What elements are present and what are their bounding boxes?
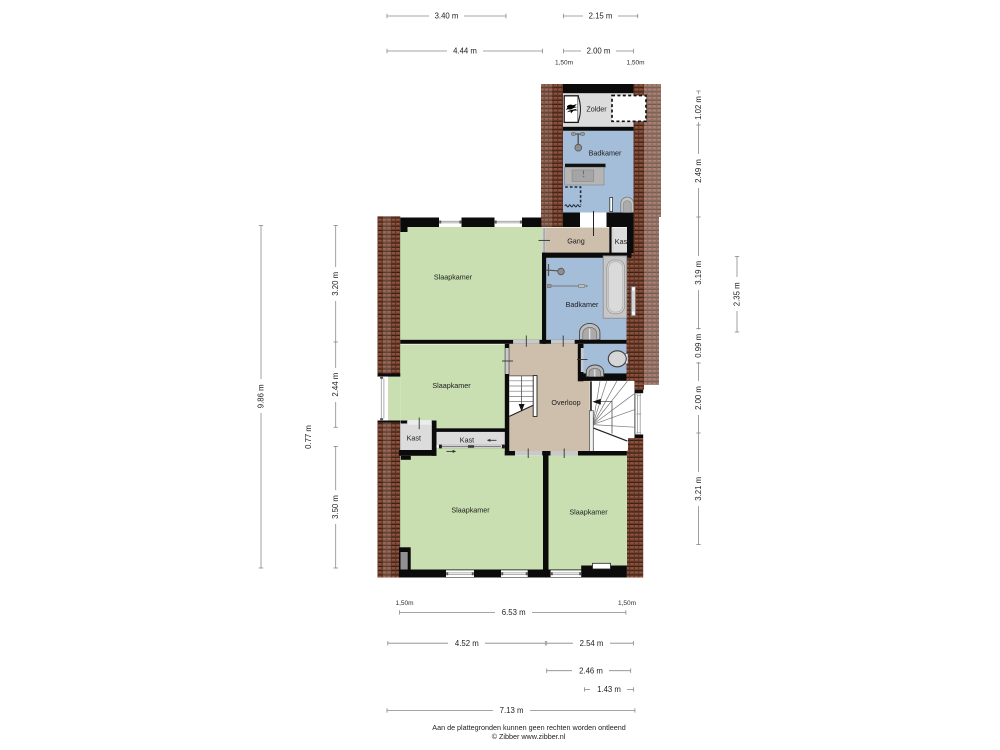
svg-text:3.40 m: 3.40 m [435,12,459,21]
svg-text:1,50m: 1,50m [555,60,573,67]
svg-text:1.02 m: 1.02 m [694,96,703,120]
svg-text:Gang: Gang [567,237,585,246]
svg-text:Slaapkamer: Slaapkamer [434,272,473,281]
svg-text:4.44 m: 4.44 m [453,47,477,56]
svg-text:© Zibber www.zibber.nl: © Zibber www.zibber.nl [492,732,566,741]
svg-text:1.43 m: 1.43 m [597,685,621,694]
svg-text:3.19 m: 3.19 m [694,261,703,285]
svg-text:7.13 m: 7.13 m [500,706,524,715]
svg-text:9.86 m: 9.86 m [257,384,266,408]
svg-text:2.54 m: 2.54 m [580,639,604,648]
svg-text:0.77 m: 0.77 m [304,425,313,449]
svg-text:Kast: Kast [407,434,421,443]
svg-text:2.00 m: 2.00 m [694,386,703,410]
svg-text:2.35 m: 2.35 m [733,282,742,306]
svg-text:Slaapkamer: Slaapkamer [451,505,490,514]
svg-text:2.44 m: 2.44 m [331,373,340,397]
svg-text:1,50m: 1,50m [395,600,413,607]
svg-text:3.21 m: 3.21 m [694,477,703,501]
svg-text:Slaapkamer: Slaapkamer [432,381,471,390]
svg-text:0.99 m: 0.99 m [694,334,703,358]
svg-text:2.00 m: 2.00 m [587,47,611,56]
svg-text:Kast: Kast [460,435,474,444]
svg-text:3.20 m: 3.20 m [331,272,340,296]
svg-text:Overloop: Overloop [551,398,580,407]
svg-text:6.53 m: 6.53 m [502,608,526,617]
svg-text:Badkamer: Badkamer [566,300,599,309]
svg-text:4.52 m: 4.52 m [455,639,479,648]
svg-text:2.49 m: 2.49 m [694,159,703,183]
svg-text:Zolder: Zolder [586,105,607,114]
svg-text:2.15 m: 2.15 m [589,12,613,21]
svg-text:Slaapkamer: Slaapkamer [569,507,608,516]
svg-text:Kast: Kast [615,237,629,246]
svg-text:2.46 m: 2.46 m [579,666,603,675]
svg-text:Badkamer: Badkamer [589,149,622,158]
svg-text:3.50 m: 3.50 m [331,495,340,519]
svg-text:1,50m: 1,50m [626,60,644,67]
svg-text:Aan de plattegronden kunnen ge: Aan de plattegronden kunnen geen rechten… [432,723,625,732]
svg-text:1,50m: 1,50m [618,600,636,607]
